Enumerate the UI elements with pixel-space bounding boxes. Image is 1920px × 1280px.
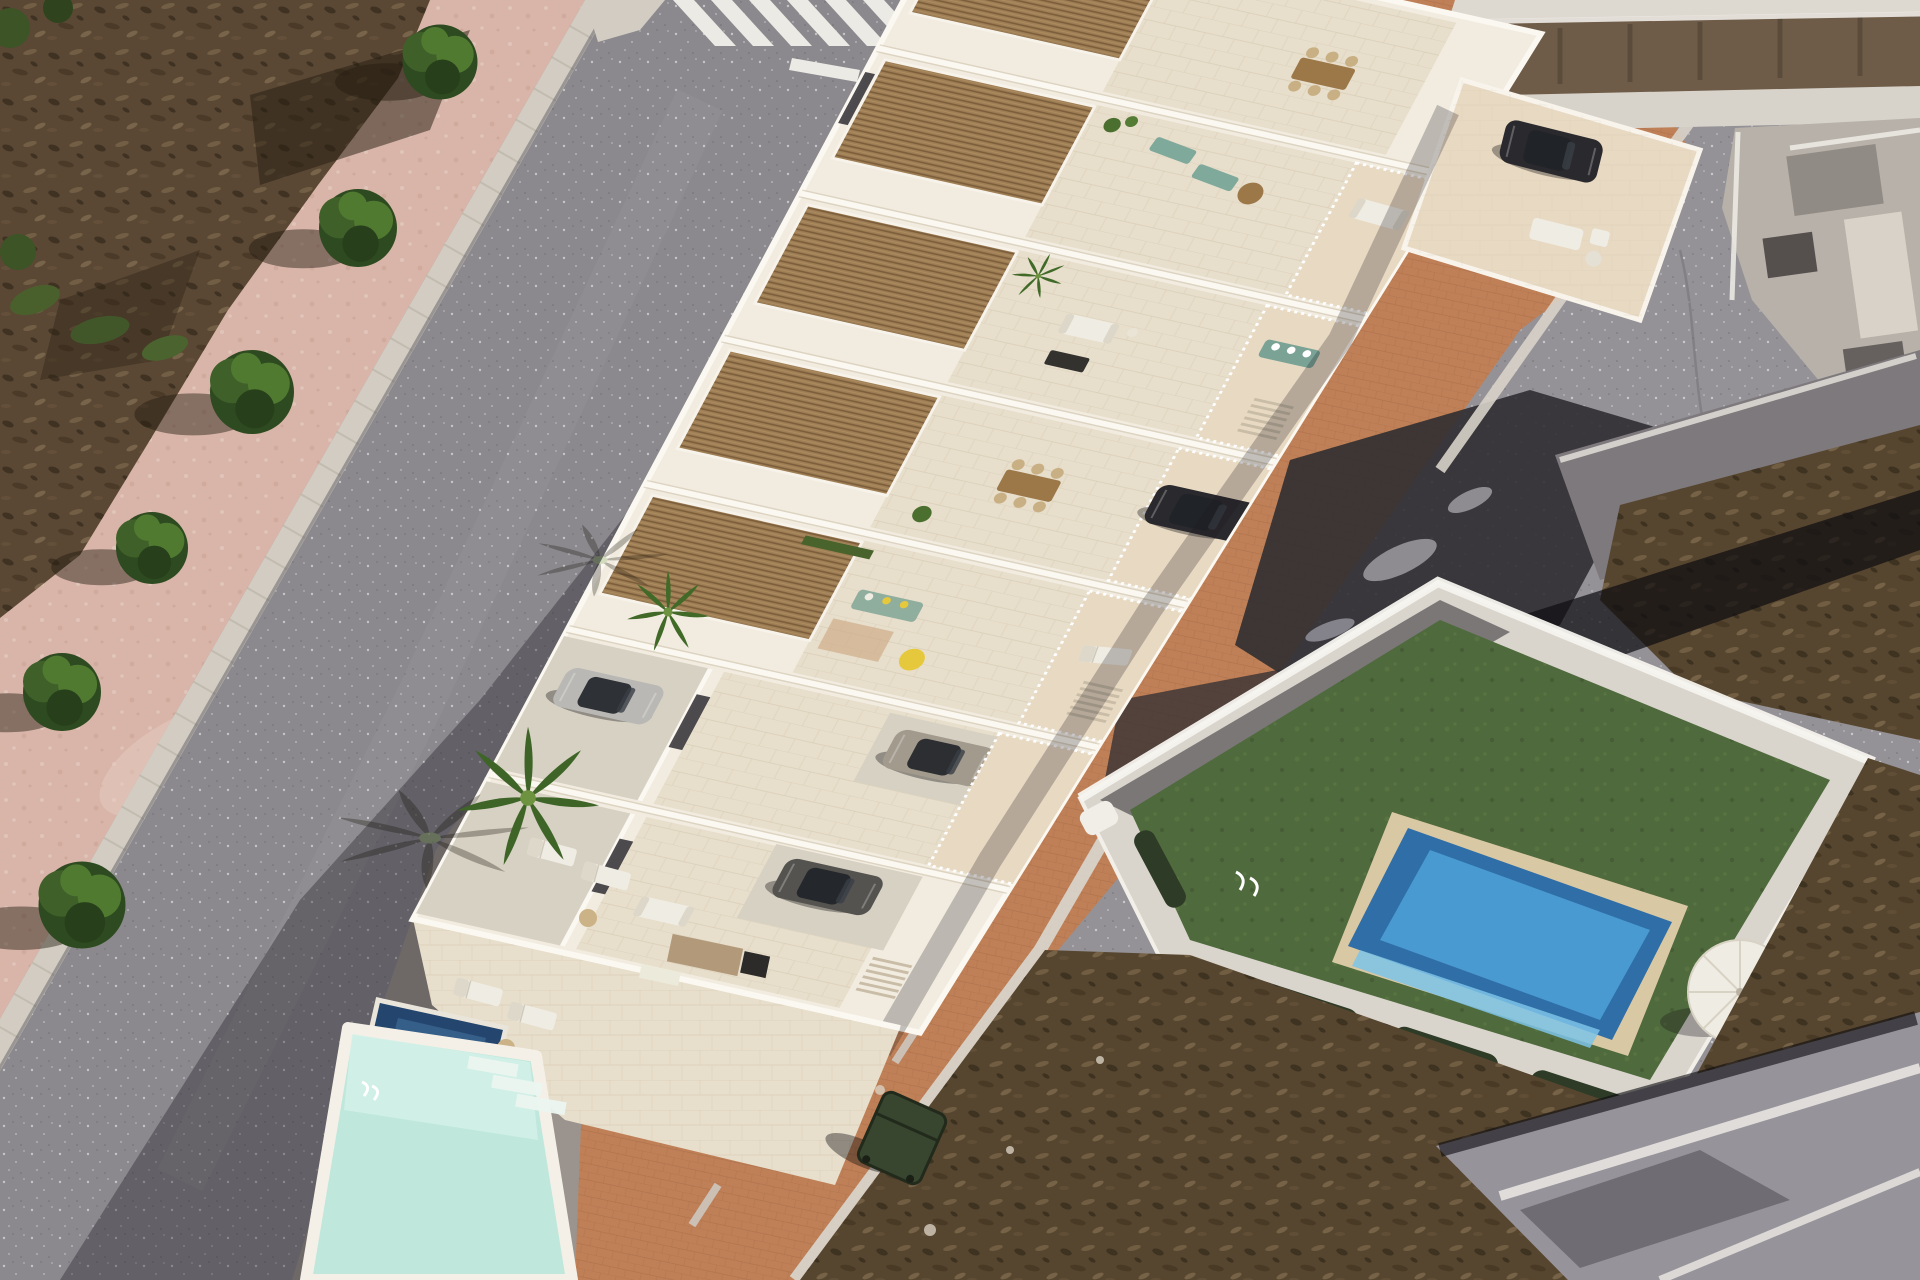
bush-icon — [0, 234, 36, 270]
communal-pool — [306, 1028, 572, 1280]
side-table — [579, 909, 597, 927]
scene-canvas — [0, 0, 1920, 1280]
aerial-render — [0, 0, 1920, 1280]
